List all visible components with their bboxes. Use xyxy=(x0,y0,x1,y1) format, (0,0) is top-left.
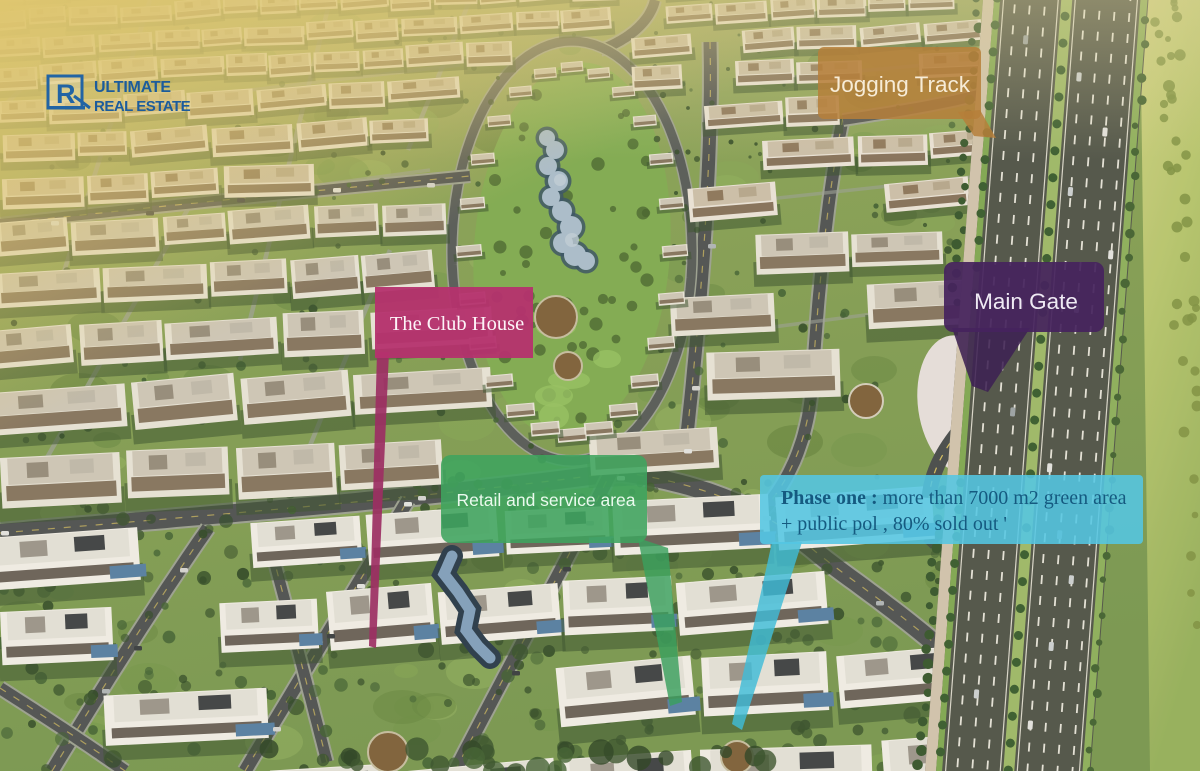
svg-text:Phase one : more than 7000 m2: Phase one : more than 7000 m2 green area xyxy=(781,487,1127,509)
svg-text:The Club House: The Club House xyxy=(390,313,524,335)
svg-text:R: R xyxy=(56,79,76,109)
svg-text:Retail and service area: Retail and service area xyxy=(457,490,636,510)
svg-text:+ public pol , 80% sold out ': + public pol , 80% sold out ' xyxy=(781,513,1007,535)
svg-text:ULTIMATE: ULTIMATE xyxy=(94,79,171,96)
svg-text:REAL ESTATE: REAL ESTATE xyxy=(94,98,191,115)
svg-text:Jogging Track: Jogging Track xyxy=(830,72,971,97)
svg-text:Main Gate: Main Gate xyxy=(974,289,1078,314)
